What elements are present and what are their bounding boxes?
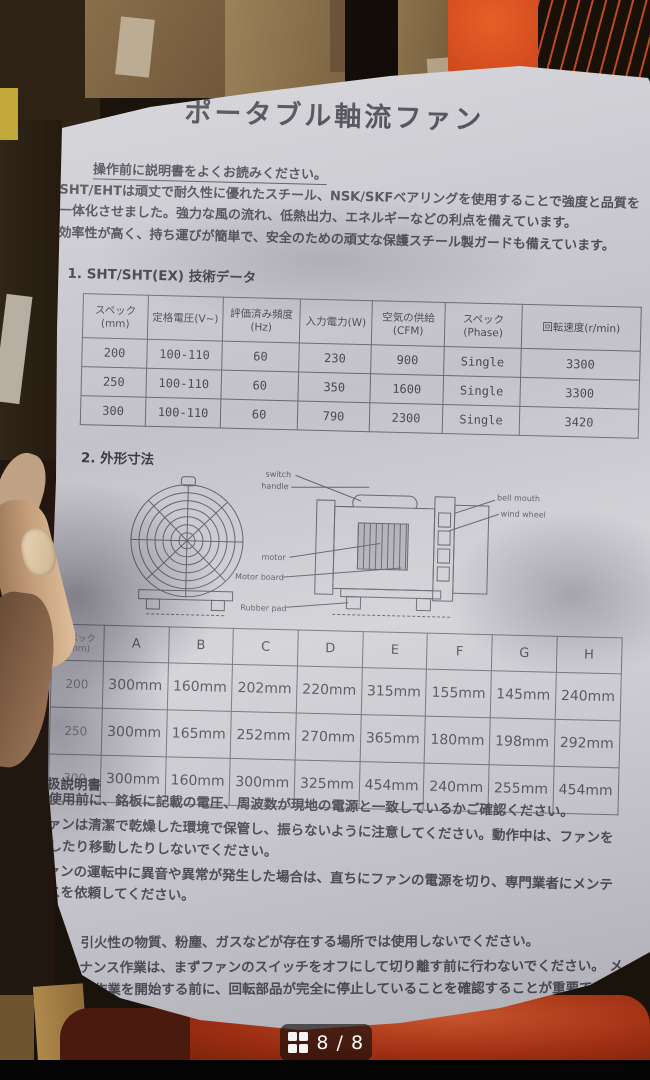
table-cell: 3300 — [521, 348, 641, 380]
column-header: A — [103, 625, 169, 663]
motor-board-label: Motor board — [235, 572, 284, 582]
table-cell: 165mm — [166, 710, 232, 759]
table-cell: 790 — [297, 401, 370, 432]
column-header: 評価済み頻度 (Hz) — [222, 297, 300, 343]
table-cell: 900 — [371, 345, 445, 376]
table-cell: 60 — [220, 399, 298, 430]
fan-dimension-diagram: switch handle bell mouth wind wheel moto… — [100, 461, 549, 632]
table-cell: 315mm — [361, 668, 427, 717]
column-header: 入力電力(W) — [299, 299, 372, 345]
bottom-letterbox-bar — [0, 1060, 650, 1080]
table-cell: 60 — [222, 341, 300, 372]
intro-paragraphs: SHT/EHTは頑丈で耐久性に優れたスチール、NSK/SKFベアリングを使用する… — [58, 181, 645, 259]
table-cell: 292mm — [554, 719, 620, 768]
handle-label: handle — [261, 482, 289, 492]
table-cell: 350 — [298, 372, 371, 403]
table-cell: 200 — [82, 338, 148, 369]
column-header: スペック(mm) — [82, 294, 148, 340]
table-cell: 365mm — [360, 715, 426, 764]
table-cell: Single — [444, 346, 522, 377]
table-cell: 300mm — [101, 708, 167, 757]
grid-icon — [288, 1032, 309, 1053]
table-cell: 300 — [80, 396, 146, 427]
table-cell: 252mm — [231, 711, 297, 760]
dimension-table: スペック(mm) A B C D E F G H 200 300mm 160mm… — [48, 623, 623, 815]
column-header: D — [298, 630, 364, 668]
table-cell: 198mm — [489, 718, 555, 767]
column-header: 定格電圧(V~) — [147, 295, 223, 341]
column-header: B — [168, 627, 234, 665]
column-header: E — [362, 632, 428, 670]
table-cell: 1600 — [370, 374, 444, 405]
column-header: H — [556, 636, 622, 674]
column-header: G — [492, 635, 558, 673]
table-cell: 240mm — [555, 672, 621, 721]
column-header: C — [233, 628, 299, 666]
table-cell: 60 — [221, 370, 299, 401]
table-cell: 3420 — [519, 406, 639, 438]
bell-mouth-label: bell mouth — [497, 493, 540, 503]
wind-wheel-label: wind wheel — [501, 509, 546, 519]
table-cell: 100-110 — [146, 368, 222, 399]
table-cell: 250 — [49, 707, 102, 755]
column-header: 空気の供給(CFM) — [371, 301, 445, 347]
column-header: スペック (Phase) — [444, 303, 522, 349]
table-cell: 230 — [299, 343, 372, 374]
table-cell: 180mm — [425, 716, 491, 765]
red-plastic-shadow — [60, 1008, 190, 1066]
bell-mouth-outline — [315, 500, 335, 594]
table-cell: 3300 — [520, 377, 640, 409]
warning-paragraphs: 爆発性、引火性の物質、粉塵、ガスなどが存在する場所では使用しないでください。 メ… — [26, 931, 626, 1002]
table-cell: 300mm — [102, 661, 168, 710]
table-cell: 160mm — [167, 663, 233, 712]
technical-data-table: スペック(mm) 定格電圧(V~) 評価済み頻度 (Hz) 入力電力(W) 空気… — [80, 293, 642, 439]
table-cell: 155mm — [426, 669, 492, 718]
instruction-list: ご使用前に、銘板に記載の電圧、周波数が現地の電源と一致しているかご確認ください。… — [20, 789, 625, 922]
column-header: F — [427, 633, 493, 671]
warning-paragraph-2: メンテナンス作業は、まずファンのスイッチをオフにして切り離す前に行わないでくださ… — [27, 956, 627, 1002]
switch-label: switch — [266, 470, 292, 480]
photo-pager-badge[interactable]: 8 / 8 — [280, 1024, 372, 1061]
table-cell: 250 — [81, 367, 147, 398]
table-cell: 200 — [50, 660, 103, 708]
box-label — [115, 16, 155, 77]
instruction-sheet: ポータブル軸流ファン 操作前に説明書をよくお読みください。 SHT/EHTは頑丈… — [0, 0, 650, 1080]
table-cell: 2300 — [369, 403, 443, 434]
yellow-strap — [0, 88, 18, 140]
section1-heading: 1. SHT/SHT(EX) 技術データ — [67, 262, 256, 287]
table-cell: Single — [442, 404, 520, 435]
table-cell: 145mm — [490, 671, 556, 720]
table-cell: 202mm — [232, 664, 298, 713]
rubber-pad-label: Rubber pad — [240, 603, 286, 613]
table-cell: 270mm — [295, 713, 361, 762]
table-cell: Single — [443, 375, 521, 406]
read-notice: 操作前に説明書をよくお読みください。 — [93, 158, 327, 185]
cardboard-box — [85, 0, 240, 98]
table-cell: 100-110 — [147, 339, 223, 370]
table-cell: 220mm — [296, 666, 362, 715]
warning-paragraph-1: 爆発性、引火性の物質、粉塵、ガスなどが存在する場所では使用しないでください。 — [26, 931, 626, 955]
motor-label: motor — [261, 553, 286, 563]
pager-count: 8 / 8 — [316, 1032, 364, 1054]
table-cell: 100-110 — [145, 397, 221, 428]
column-header: 回転速度(r/min) — [521, 304, 641, 351]
